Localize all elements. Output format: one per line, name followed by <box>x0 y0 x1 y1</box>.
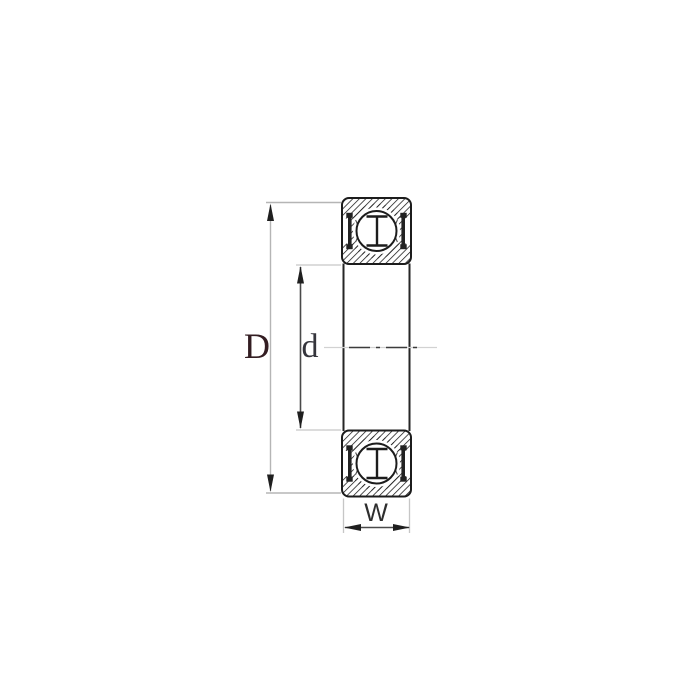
seal-right-anchor-top <box>400 445 406 450</box>
dimension-width: W <box>344 499 411 534</box>
arrowhead-right-icon <box>393 524 410 531</box>
diagram-canvas: D d W <box>0 0 700 700</box>
seal-left-anchor-top <box>346 445 352 450</box>
arrowhead-down-icon <box>297 412 304 430</box>
bearing-section-top <box>341 197 412 265</box>
arrowhead-up-icon <box>297 266 304 284</box>
label-outer-diameter: D <box>244 326 270 366</box>
seal-left-anchor-bottom <box>346 244 352 249</box>
label-width: W <box>364 499 388 527</box>
bearing-section-bottom-fill <box>341 430 412 498</box>
seal-right-anchor-top <box>400 213 406 218</box>
arrowhead-down-icon <box>267 475 274 493</box>
seal-left-anchor-bottom <box>346 477 352 482</box>
seal-right-anchor-bottom <box>400 477 406 482</box>
seal-right-anchor-bottom <box>400 244 406 249</box>
label-bore-diameter: d <box>302 328 319 365</box>
bearing-section-bottom <box>341 430 412 498</box>
arrowhead-up-icon <box>267 204 274 222</box>
arrowhead-left-icon <box>344 524 361 531</box>
seal-left-anchor-top <box>346 213 352 218</box>
bearing-diagram-svg: D d W <box>0 0 700 700</box>
bearing-section-top-fill <box>341 197 412 265</box>
